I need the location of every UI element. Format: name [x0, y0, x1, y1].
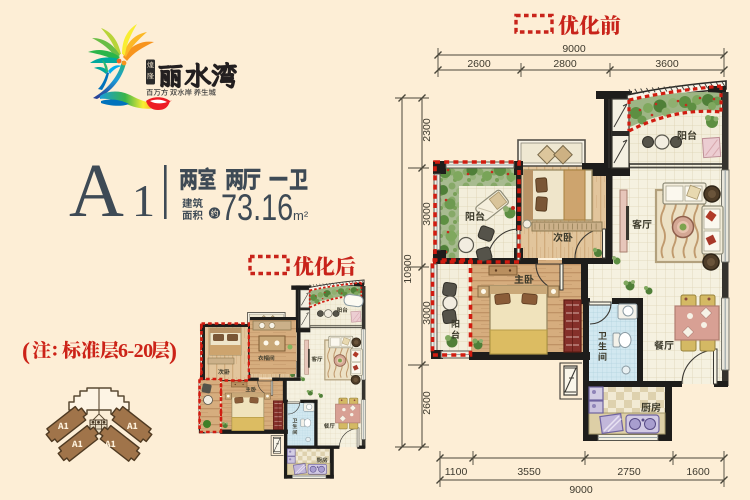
svg-text:2800: 2800 [553, 58, 577, 70]
svg-text:73.16: 73.16 [221, 188, 293, 229]
svg-text:2300: 2300 [421, 118, 433, 142]
svg-text:3000: 3000 [421, 301, 433, 325]
svg-text:1600: 1600 [686, 466, 710, 478]
svg-text:10900: 10900 [402, 254, 414, 283]
svg-text:2600: 2600 [467, 58, 491, 70]
svg-text:1: 1 [132, 175, 155, 226]
svg-text:6-20: 6-20 [118, 340, 153, 362]
svg-text:9000: 9000 [562, 43, 586, 55]
svg-text:3550: 3550 [517, 466, 541, 478]
svg-text:A: A [69, 149, 124, 233]
svg-text:2750: 2750 [617, 466, 641, 478]
svg-text:3600: 3600 [655, 58, 679, 70]
svg-text:1100: 1100 [445, 466, 468, 478]
svg-text:(: ( [22, 339, 30, 365]
svg-text:9000: 9000 [569, 484, 593, 496]
svg-text:): ) [169, 339, 177, 365]
svg-text:3000: 3000 [421, 202, 433, 226]
svg-text:2600: 2600 [421, 391, 433, 415]
svg-text:m²: m² [293, 208, 309, 223]
